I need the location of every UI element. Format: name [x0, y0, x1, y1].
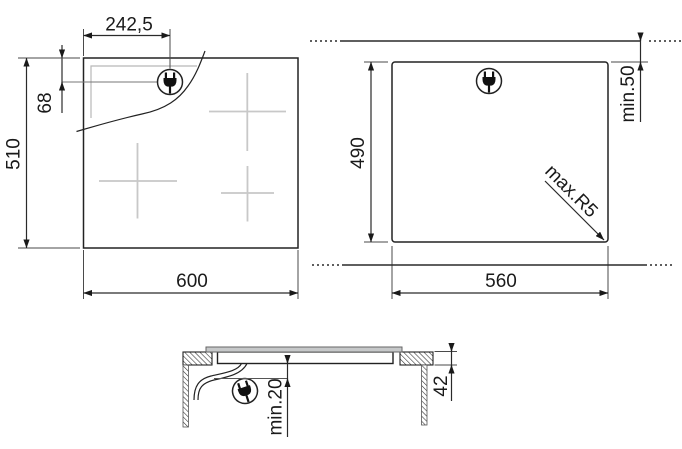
- technical-drawing: 242,5 68 510 600: [0, 0, 682, 449]
- dim-hob-depth: 510: [4, 58, 81, 248]
- dim-label: 242,5: [105, 15, 153, 36]
- dim-label: 510: [4, 138, 25, 170]
- hob-body-section: [218, 352, 394, 364]
- side-section-view: min.20 42: [183, 344, 457, 438]
- countertop-section-left: [183, 352, 212, 365]
- dim-cutout-width: 560: [392, 246, 608, 299]
- dim-label: min.50: [618, 65, 639, 122]
- dim-bottom-clearance: min.20: [266, 356, 288, 437]
- dim-label: 68: [35, 92, 56, 113]
- cabinet-wall-right: [422, 365, 428, 425]
- dim-plug-offset-y: 68: [35, 45, 62, 114]
- dim-label: 490: [348, 137, 369, 169]
- drawing-canvas: 242,5 68 510 600: [0, 0, 682, 449]
- hob-outline: [84, 58, 299, 248]
- cutout-outline: [392, 62, 608, 242]
- dim-label: 560: [485, 271, 517, 292]
- power-plug-icon: [158, 70, 183, 95]
- power-plug-icon: [477, 69, 502, 94]
- dim-label: 600: [176, 271, 208, 292]
- hob-top-view: 242,5 68 510 600: [4, 15, 299, 300]
- power-plug-icon: [229, 375, 261, 407]
- dim-label: min.20: [266, 378, 287, 435]
- hob-glass-section: [206, 347, 402, 352]
- dim-wall-clearance: min.50: [611, 33, 648, 123]
- cabinet-wall-left: [183, 365, 189, 427]
- dim-cutout-depth: 490: [348, 62, 388, 242]
- dim-label: 42: [431, 375, 452, 396]
- dim-body-height: 42: [431, 344, 457, 402]
- dim-hob-width: 600: [84, 250, 299, 299]
- countertop-section-right: [400, 352, 433, 365]
- worktop-cutout-view: 490 min.50 max.R5 560: [310, 33, 681, 300]
